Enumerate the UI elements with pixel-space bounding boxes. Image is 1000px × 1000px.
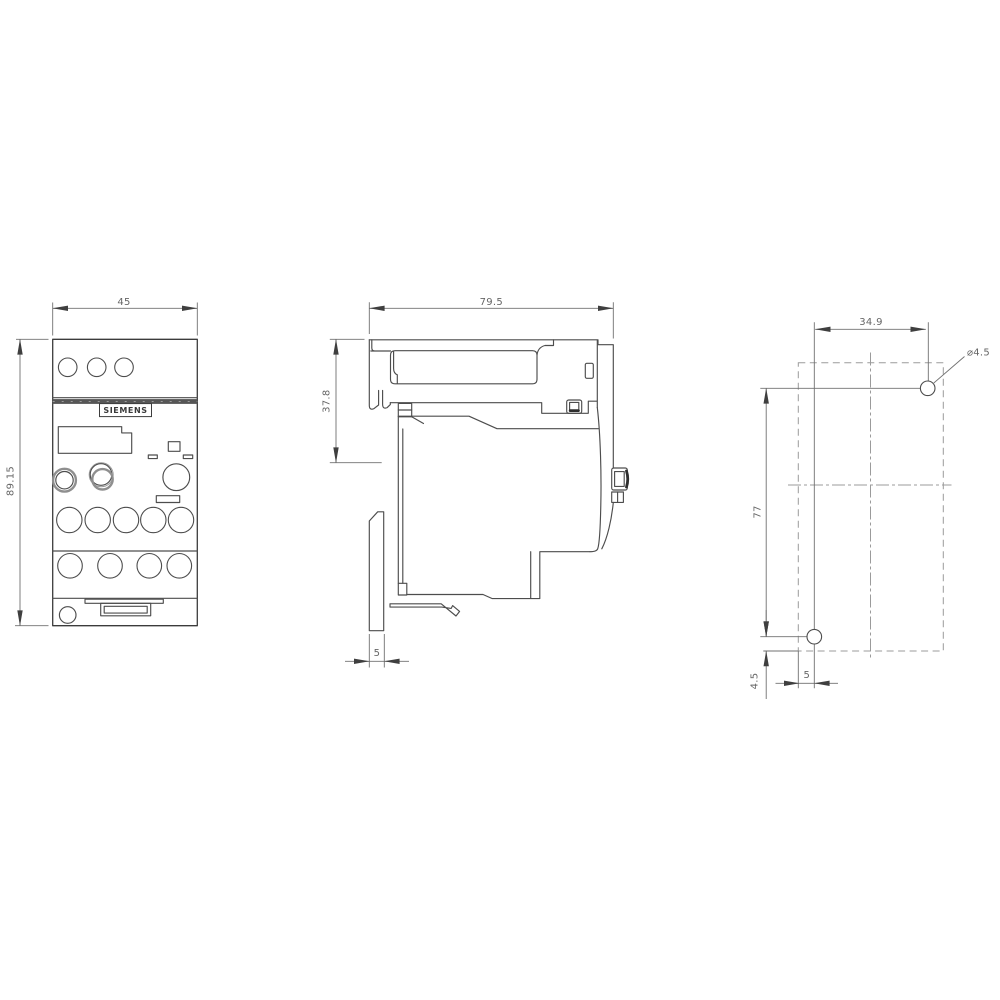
adjustment-knob-middle	[89, 463, 113, 490]
side-depth-dim-text: 79.5	[480, 297, 503, 308]
terminal-hole	[85, 507, 110, 532]
terminal-hole	[167, 554, 192, 579]
din-rail-release-tab	[85, 599, 163, 616]
upper-housing-cavity	[371, 340, 554, 384]
side-view: 79.5 37.8 5	[322, 297, 628, 668]
top-clip-window	[585, 363, 593, 378]
label-slot	[156, 496, 179, 503]
terminal-hole	[58, 554, 83, 579]
terminal-hole	[141, 507, 166, 532]
test-button	[168, 442, 180, 452]
reset-button	[163, 464, 190, 491]
side-dimensions: 79.5 37.8 5	[322, 297, 614, 668]
side-plunger	[612, 468, 628, 502]
mounting-plate-lower	[369, 512, 383, 631]
terminal-hole	[58, 358, 77, 377]
side-upper-dim-text: 37.8	[322, 389, 333, 412]
front-view: 45 89.15 SIEMENS	[6, 297, 198, 626]
terminal-hole	[115, 358, 134, 377]
setting-window	[58, 427, 131, 454]
fixing-clip	[567, 400, 582, 413]
front-mid-terminals	[57, 507, 194, 532]
adjustment-knob-left	[53, 469, 76, 492]
bottom-screw-hole	[59, 607, 76, 624]
hole-spacing-v-dim-text: 77	[753, 505, 764, 518]
terminal-screw-side	[398, 403, 423, 423]
hole-spacing-h-dim-text: 34.9	[859, 317, 882, 328]
mounting-hole-bottom	[807, 629, 822, 644]
front-dimensions: 45 89.15	[6, 297, 198, 626]
side-upper-extension-lines	[330, 339, 382, 462]
indicator-slot-right	[183, 455, 192, 459]
center-lines	[788, 353, 952, 661]
drilling-plan: 34.9 ⌀4.5 77 4.5 5	[750, 317, 991, 699]
indicator-slot-left	[148, 455, 157, 459]
front-height-dim-text: 89.15	[6, 466, 17, 496]
plunger-inner	[615, 472, 625, 487]
knob-ring	[53, 469, 76, 492]
bottom-offset-dim-text: 4.5	[750, 673, 761, 690]
din-spring-clip	[390, 604, 460, 616]
body-bottom-tab	[398, 583, 407, 595]
left-offset-dim-text: 5	[803, 670, 810, 681]
mounting-hole-top	[920, 381, 935, 396]
terminal-hole	[98, 554, 123, 579]
dimension-drawing: 45 89.15 SIEMENS	[0, 0, 1000, 1000]
terminal-hole	[57, 507, 82, 532]
terminal-hole	[137, 554, 162, 579]
tab-inner	[104, 606, 147, 613]
front-width-dim-text: 45	[117, 297, 130, 308]
plate-thickness-dim-text: 5	[374, 648, 381, 659]
terminal-hole	[87, 358, 106, 377]
tab-outer	[101, 603, 151, 616]
drawing-svg: 45 89.15 SIEMENS	[0, 0, 1000, 1000]
front-body-outline	[53, 339, 198, 625]
knob-center	[56, 472, 73, 489]
terminal-hole	[168, 507, 193, 532]
hole-diameter-leader	[934, 357, 965, 384]
plunger-shading	[627, 471, 628, 487]
front-lower-terminals	[58, 554, 192, 579]
drill-extension-lines	[760, 322, 928, 688]
terminal-hole	[113, 507, 138, 532]
front-top-terminals	[58, 358, 133, 377]
hole-diameter-text: ⌀4.5	[967, 348, 990, 359]
brand-label-text: SIEMENS	[103, 406, 147, 415]
body-outline	[398, 416, 598, 598]
tab-lip	[85, 599, 163, 603]
